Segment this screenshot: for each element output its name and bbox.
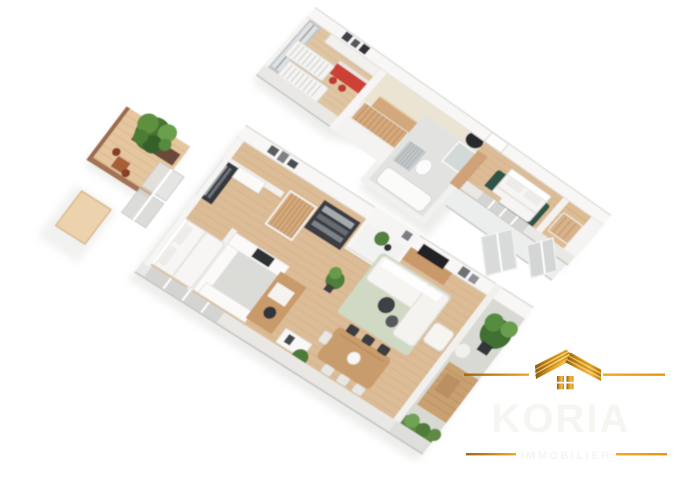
svg-text:KORIA: KORIA bbox=[492, 397, 631, 441]
svg-text:IMMOBILIER: IMMOBILIER bbox=[521, 450, 612, 462]
